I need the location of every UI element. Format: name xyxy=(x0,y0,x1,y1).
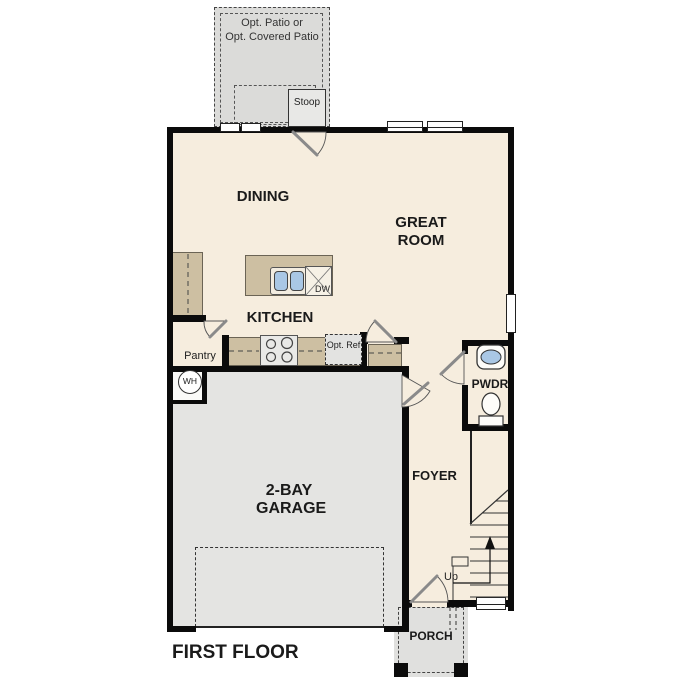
wall-segment xyxy=(508,127,514,611)
wall-segment xyxy=(402,366,409,632)
powder-label: PWDR xyxy=(468,377,512,391)
garage-door-outline xyxy=(195,547,384,627)
window xyxy=(476,597,506,610)
wall-segment xyxy=(447,600,478,607)
window-mullion xyxy=(477,604,505,605)
porch-post xyxy=(394,663,408,677)
optional-refrigerator: Opt. Ref xyxy=(325,334,362,365)
stairs-up-label: Up xyxy=(439,571,463,583)
optional-patio-label-line2: Opt. Covered Patio xyxy=(214,31,330,45)
kitchen-label: KITCHEN xyxy=(230,309,330,327)
dishwasher-label: DW xyxy=(315,284,330,294)
wall-segment xyxy=(462,340,514,346)
wall-segment xyxy=(405,600,412,607)
wall-segment xyxy=(173,315,206,322)
optional-refrigerator-label: Opt. Ref xyxy=(327,340,361,350)
plan-title: FIRST FLOOR xyxy=(172,642,299,664)
window xyxy=(241,123,261,132)
stair-rail-wall xyxy=(470,431,472,524)
porch-label: PORCH xyxy=(400,629,462,643)
window-mullion xyxy=(388,127,422,128)
first-floor-plan: Opt. Patio or Opt. Covered Patio Stoop xyxy=(0,0,687,687)
porch-post xyxy=(454,663,468,677)
wall-segment xyxy=(462,340,468,354)
dining-label: DINING xyxy=(213,188,313,206)
pantry-label: Pantry xyxy=(174,350,226,362)
great-room-label: GREAT ROOM xyxy=(386,214,456,249)
wall-segment xyxy=(394,337,409,344)
sink-basin xyxy=(290,271,304,291)
drop-zone-shelf xyxy=(368,344,402,368)
water-heater-label: WH xyxy=(183,376,197,386)
garage-label: 2-BAY GARAGE xyxy=(256,482,322,519)
window xyxy=(220,123,240,132)
pantry-shelving xyxy=(172,252,203,316)
range-stove xyxy=(260,335,298,366)
wall-segment xyxy=(167,127,173,632)
window xyxy=(387,121,423,132)
window xyxy=(427,121,463,132)
garage-door-opening xyxy=(196,626,384,634)
sink-basin xyxy=(274,271,288,291)
wall-segment xyxy=(462,424,514,431)
stoop-label: Stoop xyxy=(294,97,320,108)
wall-segment xyxy=(167,626,197,632)
optional-patio-label: Opt. Patio or Opt. Covered Patio xyxy=(214,17,330,45)
optional-patio-label-line1: Opt. Patio or xyxy=(214,17,330,31)
stoop: Stoop xyxy=(288,89,326,127)
window-mullion xyxy=(428,127,462,128)
foyer-label: FOYER xyxy=(407,468,462,483)
window xyxy=(506,294,516,333)
wall-segment xyxy=(202,370,207,404)
dishwasher: DW xyxy=(305,266,332,296)
wall-segment xyxy=(167,400,207,404)
water-heater: WH xyxy=(178,370,202,394)
